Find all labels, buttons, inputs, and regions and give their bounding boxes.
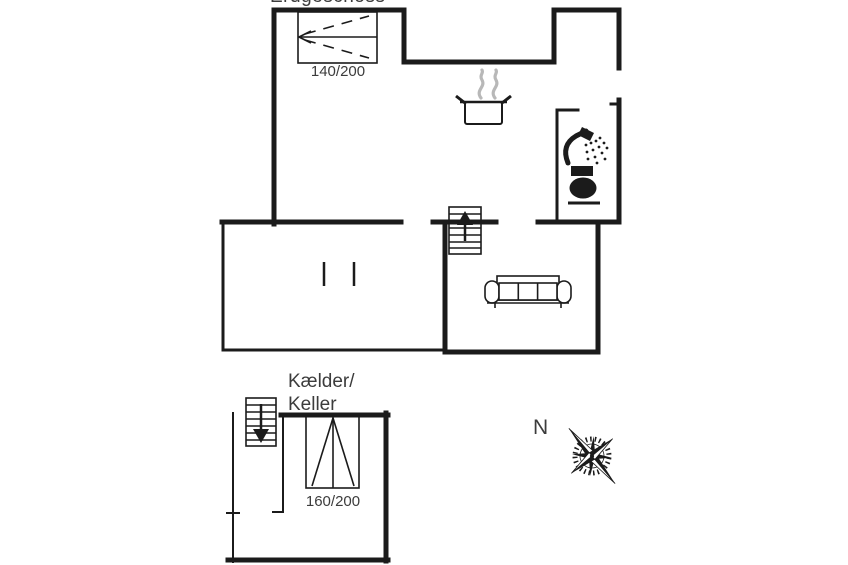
stairs-down-icon xyxy=(246,398,276,446)
floor-plan-drawing xyxy=(0,0,848,565)
bed-size-label-140: 140/200 xyxy=(299,63,377,80)
steam-icon xyxy=(479,70,497,98)
shower-icon xyxy=(566,127,609,164)
terrace-walls xyxy=(223,224,444,350)
terrace-door-marks xyxy=(324,262,354,286)
floor-plan-page: Erdgeschoss 140/200 Kælder/ Keller 160/2… xyxy=(0,0,848,565)
ground-floor-title: Erdgeschoss xyxy=(270,0,385,8)
double-bed-icon xyxy=(298,12,377,63)
cooking-pot-icon xyxy=(456,96,511,124)
basement-title-line2: Keller xyxy=(288,394,337,416)
compass-north-label: N xyxy=(533,416,548,440)
compass-rose-icon xyxy=(547,410,637,502)
bed-size-label-160: 160/200 xyxy=(296,493,370,510)
sofa-icon xyxy=(485,276,571,308)
stairs-up-icon xyxy=(449,207,481,254)
basement-title-line1: Kælder/ xyxy=(288,371,355,393)
toilet-icon xyxy=(568,166,600,203)
single-bed-icon xyxy=(306,416,359,488)
